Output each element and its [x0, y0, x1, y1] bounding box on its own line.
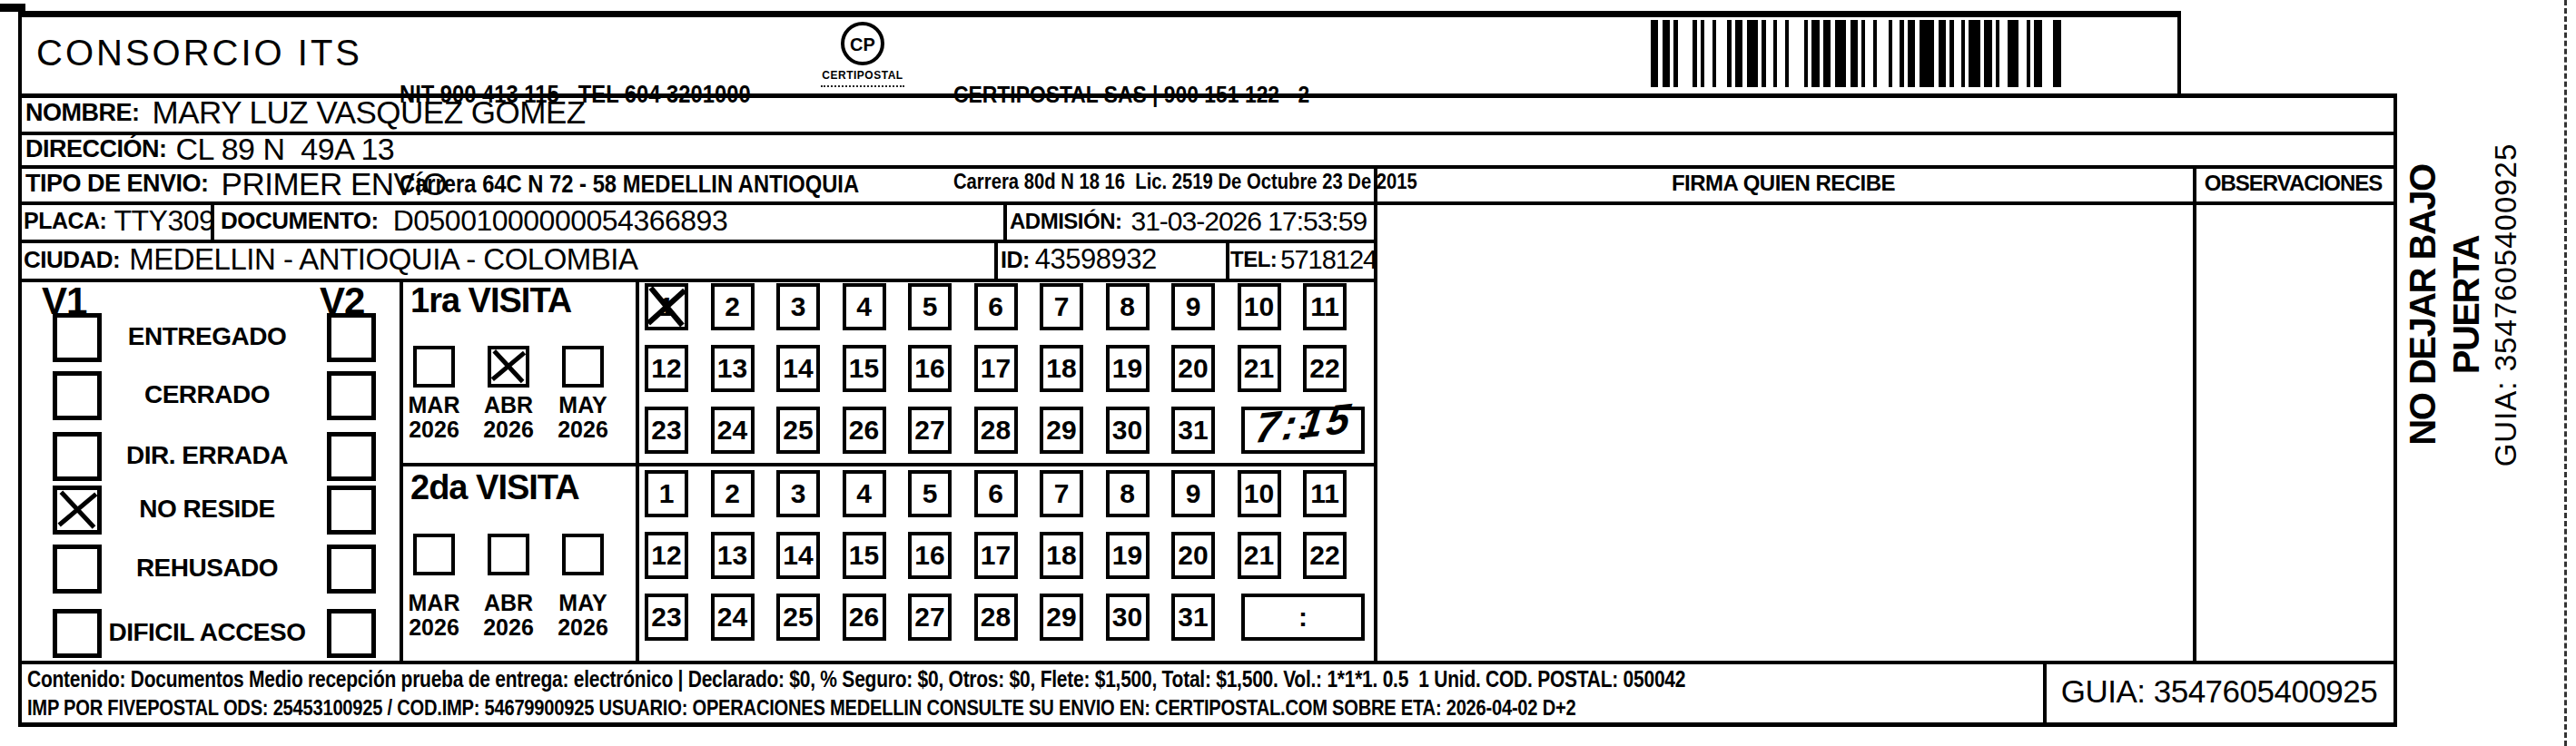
- day-cell-8-visit-2[interactable]: 8: [1106, 470, 1150, 517]
- provider-license-line: Carrera 80d N 18 16 Lic. 2519 De Octubre…: [953, 167, 1417, 196]
- first-visit-title: 1ra VISITA: [410, 281, 571, 320]
- barcode-bar: [2042, 20, 2054, 87]
- day-cell-26-visit-1[interactable]: 26: [843, 407, 886, 454]
- documento-value: D05001000000054366893: [393, 204, 728, 238]
- month-label-mar: MAR: [396, 392, 472, 418]
- tipo-envio-value: PRIMER ENVíO: [222, 166, 448, 202]
- day-cell-17-visit-2[interactable]: 17: [974, 532, 1018, 579]
- visita-days-divider: [636, 279, 639, 661]
- tipo-envio-label: TIPO DE ENVIO:: [25, 170, 209, 198]
- nombre-label: NOMBRE:: [25, 99, 140, 127]
- month-year-label: 2026: [396, 614, 472, 641]
- barcode-bar: [1939, 20, 1946, 87]
- day-number: 7: [1054, 291, 1070, 321]
- day-cell-19-visit-1[interactable]: 19: [1106, 345, 1150, 392]
- placa-label: PLACA:: [24, 208, 106, 234]
- day-number: 10: [1244, 478, 1274, 508]
- day-number: 27: [914, 602, 944, 632]
- day-cell-13-visit-1[interactable]: 13: [711, 345, 755, 392]
- day-cell-28-visit-2[interactable]: 28: [974, 594, 1018, 641]
- no-dejar-bajo-puerta-text: NO DEJAR BAJO PUERTA: [2401, 113, 2488, 497]
- barcode-bar: [1777, 20, 1784, 87]
- day-number: 12: [651, 353, 681, 383]
- day-cell-12-visit-1[interactable]: 12: [645, 345, 688, 392]
- month-year-label: 2026: [470, 614, 547, 641]
- row-line-below-direccion: [18, 165, 2397, 169]
- placa-documento-divider: [211, 201, 214, 243]
- day-number: 20: [1178, 353, 1208, 383]
- left-section-right-border: [1374, 165, 1377, 661]
- status-label-dificil-acceso: DIFICIL ACCESO: [93, 618, 321, 647]
- documento-label: DOCUMENTO:: [221, 207, 379, 235]
- field-documento: DOCUMENTO: D05001000000054366893: [221, 202, 727, 240]
- day-cell-1-visit-1[interactable]: 1: [645, 283, 688, 330]
- day-cell-20-visit-1[interactable]: 20: [1171, 345, 1215, 392]
- month-label-may: MAY: [545, 590, 621, 616]
- firma-observaciones-divider: [2193, 165, 2196, 661]
- day-cell-23-visit-2[interactable]: 23: [645, 594, 688, 641]
- day-cell-27-visit-2[interactable]: 27: [908, 594, 952, 641]
- field-ciudad: CIUDAD: MEDELLIN - ANTIOQUIA - COLOMBIA: [24, 240, 638, 279]
- logo-wordmark: CERTIPOSTAL: [808, 69, 917, 82]
- day-number: 25: [783, 602, 813, 632]
- day-cell-23-visit-1[interactable]: 23: [645, 407, 688, 454]
- barcode-bar: [1766, 20, 1773, 87]
- day-cell-24-visit-1[interactable]: 24: [711, 407, 755, 454]
- barcode-bar: [2008, 20, 2019, 87]
- day-number: 6: [988, 291, 1003, 321]
- logo-monogram: CP: [850, 34, 875, 54]
- barcode-bar: [1984, 20, 1991, 87]
- month-year-label: 2026: [545, 614, 621, 641]
- observaciones-area[interactable]: [2196, 203, 2390, 657]
- day-number: 10: [1244, 291, 1274, 321]
- id-value: 43598932: [1035, 243, 1157, 276]
- form-bottom-border: [18, 722, 2397, 727]
- footer-imp-line: IMP POR FIVEPOSTAL ODS: 25453100925 / CO…: [27, 695, 1575, 721]
- perforation-dashed-edge: [2564, 0, 2567, 746]
- day-cell-12-visit-2[interactable]: 12: [645, 532, 688, 579]
- checkbox-v2-cerrado[interactable]: [327, 371, 376, 420]
- barcode-bar: [1865, 20, 1872, 87]
- checkbox-month-may-visit-2[interactable]: [562, 534, 604, 575]
- day-number: 13: [717, 540, 747, 570]
- company-address-line: Carrera 64C N 72 - 58 MEDELLIN ANTIOQUIA: [400, 170, 859, 200]
- barcode-bar: [1811, 20, 1819, 87]
- row-line-below-ciudad: [18, 279, 1377, 282]
- id-label: ID:: [1001, 247, 1030, 273]
- direccion-value: CL 89 N 49A 13: [176, 132, 395, 167]
- day-number: 28: [981, 602, 1011, 632]
- month-label-mar: MAR: [396, 590, 472, 616]
- barcode-bar: [1651, 20, 1658, 87]
- second-visit-title: 2da VISITA: [410, 468, 579, 507]
- checkbox-v2-no-reside[interactable]: [327, 486, 376, 535]
- day-number: 26: [849, 415, 879, 445]
- day-cell-17-visit-1[interactable]: 17: [974, 345, 1018, 392]
- day-cell-18-visit-1[interactable]: 18: [1040, 345, 1083, 392]
- barcode-bar: [1892, 20, 1900, 87]
- day-number: 1: [659, 478, 675, 508]
- day-number: 24: [717, 415, 747, 445]
- day-number: 24: [717, 602, 747, 632]
- checkbox-month-abr-visit-1[interactable]: [488, 346, 529, 388]
- visit-divider-line: [400, 463, 1377, 466]
- day-cell-28-visit-1[interactable]: 28: [974, 407, 1018, 454]
- header-top-border: [18, 11, 2181, 17]
- day-cell-3-visit-2[interactable]: 3: [776, 470, 820, 517]
- barcode-bar: [1877, 20, 1889, 87]
- side-note-vertical: NO DEJAR BAJO PUERTA GUIA: 3547605400925: [2401, 113, 2524, 497]
- day-number: 13: [717, 353, 747, 383]
- field-direccion: DIRECCIÓN: CL 89 N 49A 13: [25, 133, 394, 165]
- month-label-abr: ABR: [470, 590, 547, 616]
- day-cell-18-visit-2[interactable]: 18: [1040, 532, 1083, 579]
- day-number: 22: [1309, 540, 1339, 570]
- id-tel-divider: [1226, 240, 1229, 282]
- status-label-rehusado: REHUSADO: [93, 554, 321, 583]
- form-left-border: [18, 11, 22, 727]
- day-cell-5-visit-2[interactable]: 5: [908, 470, 952, 517]
- day-number: 8: [1120, 478, 1135, 508]
- barcode-bar: [1704, 20, 1712, 87]
- day-cell-21-visit-1[interactable]: 21: [1238, 345, 1281, 392]
- day-cell-26-visit-2[interactable]: 26: [843, 594, 886, 641]
- barcode-bar: [1908, 20, 1915, 87]
- month-year-label: 2026: [545, 417, 621, 443]
- nombre-value: MARY LUZ VASQUEZ GOMEZ: [153, 94, 586, 131]
- footer-content-line: Contenido: Documentos Medio recepción pr…: [27, 666, 1685, 692]
- day-number: 2: [725, 478, 740, 508]
- day-number: 29: [1046, 415, 1076, 445]
- ciudad-value: MEDELLIN - ANTIOQUIA - COLOMBIA: [129, 242, 637, 277]
- observaciones-header: OBSERVACIONES: [2196, 169, 2390, 198]
- status-label-dir-errada: DIR. ERRADA: [93, 441, 321, 470]
- day-cell-25-visit-1[interactable]: 25: [776, 407, 820, 454]
- barcode-bar: [1663, 20, 1670, 87]
- logo-tagline: [821, 85, 904, 87]
- barcode-bar: [1969, 20, 1980, 87]
- day-number: 20: [1178, 540, 1208, 570]
- day-number: 21: [1244, 353, 1274, 383]
- day-cell-10-visit-1[interactable]: 10: [1238, 283, 1281, 330]
- day-number: 3: [791, 291, 806, 321]
- handwritten-time: 7:15: [1244, 397, 1366, 449]
- day-cell-6-visit-2[interactable]: 6: [974, 470, 1018, 517]
- day-number: 17: [981, 540, 1011, 570]
- admision-value: 31-03-2026 17:53:59: [1131, 206, 1367, 237]
- day-cell-7-visit-2[interactable]: 7: [1040, 470, 1083, 517]
- day-number: 29: [1046, 602, 1076, 632]
- row-line-below-nombre: [18, 132, 2397, 135]
- day-cell-11-visit-2[interactable]: 11: [1303, 470, 1347, 517]
- day-cell-27-visit-1[interactable]: 27: [908, 407, 952, 454]
- form-right-border: [2393, 93, 2397, 727]
- day-number: 12: [651, 540, 681, 570]
- day-cell-22-visit-1[interactable]: 22: [1303, 345, 1347, 392]
- day-number: 23: [651, 415, 681, 445]
- day-cell-4-visit-1[interactable]: 4: [843, 283, 886, 330]
- month-label-may: MAY: [545, 392, 621, 418]
- day-cell-31-visit-1[interactable]: 31: [1171, 407, 1215, 454]
- checkbox-month-abr-visit-2[interactable]: [488, 534, 529, 575]
- day-cell-8-visit-1[interactable]: 8: [1106, 283, 1150, 330]
- day-number: 16: [914, 540, 944, 570]
- day-number: 9: [1186, 291, 1201, 321]
- day-cell-15-visit-1[interactable]: 15: [843, 345, 886, 392]
- tel-label: TEL:: [1230, 247, 1277, 272]
- field-admision: ADMISIÓN: 31-03-2026 17:53:59: [1010, 202, 1367, 240]
- day-number: 31: [1178, 602, 1208, 632]
- barcode-bar: [2018, 20, 2026, 87]
- barcode-bar: [1716, 20, 1728, 87]
- day-cell-20-visit-2[interactable]: 20: [1171, 532, 1215, 579]
- barcode-bar: [2053, 20, 2060, 87]
- ciudad-id-divider: [994, 240, 998, 282]
- day-number: 14: [783, 540, 813, 570]
- day-cell-29-visit-2[interactable]: 29: [1040, 594, 1083, 641]
- checkbox-v2-dir-errada[interactable]: [327, 432, 376, 481]
- day-number: 28: [981, 415, 1011, 445]
- checkbox-month-may-visit-1[interactable]: [562, 346, 604, 388]
- day-number: 3: [791, 478, 806, 508]
- day-number: 31: [1178, 415, 1208, 445]
- time-box-visit-1[interactable]: :7:15: [1241, 407, 1365, 454]
- day-number: 16: [914, 353, 944, 383]
- day-number: 8: [1120, 291, 1135, 321]
- day-cell-2-visit-2[interactable]: 2: [711, 470, 755, 517]
- day-cell-11-visit-1[interactable]: 11: [1303, 283, 1347, 330]
- day-cell-30-visit-1[interactable]: 30: [1106, 407, 1150, 454]
- day-cell-4-visit-2[interactable]: 4: [843, 470, 886, 517]
- day-number: 27: [914, 415, 944, 445]
- header-right-border: [2177, 11, 2181, 93]
- day-cell-16-visit-1[interactable]: 16: [908, 345, 952, 392]
- day-cell-6-visit-1[interactable]: 6: [974, 283, 1018, 330]
- day-number: 9: [1186, 478, 1201, 508]
- day-number: 4: [856, 291, 872, 321]
- guia-number-box: GUIA: 3547605400925: [2047, 663, 2392, 721]
- day-cell-16-visit-2[interactable]: 16: [908, 532, 952, 579]
- barcode-bar: [1851, 20, 1858, 87]
- barcode-bar: [1735, 20, 1742, 87]
- header-bottom-border: [18, 93, 2397, 98]
- checkbox-v2-entregado[interactable]: [327, 313, 376, 362]
- day-number: 18: [1046, 353, 1076, 383]
- barcode-bar: [1920, 20, 1935, 87]
- day-number: 5: [923, 478, 938, 508]
- day-number: 30: [1112, 415, 1142, 445]
- day-cell-13-visit-2[interactable]: 13: [711, 532, 755, 579]
- day-number: 14: [783, 353, 813, 383]
- field-tel: TEL: 5718124: [1230, 240, 1377, 279]
- row-line-below-placa: [18, 240, 1377, 243]
- footer-top-border: [18, 661, 2397, 664]
- day-cell-1-visit-2[interactable]: 1: [645, 470, 688, 517]
- day-number: 15: [849, 353, 879, 383]
- day-number: 6: [988, 478, 1003, 508]
- day-number: 11: [1310, 291, 1339, 321]
- month-year-label: 2026: [470, 417, 547, 443]
- barcode-bar: [2034, 20, 2041, 87]
- barcode-bar: [1835, 20, 1847, 87]
- firma-area[interactable]: [1377, 203, 2189, 657]
- day-cell-5-visit-1[interactable]: 5: [908, 283, 952, 330]
- time-box-visit-2[interactable]: :: [1241, 594, 1365, 641]
- day-cell-7-visit-1[interactable]: 7: [1040, 283, 1083, 330]
- row-line-below-tipo: [18, 201, 2397, 205]
- side-guia-text: GUIA: 3547605400925: [2488, 113, 2524, 497]
- placa-value: TTY309: [114, 204, 214, 238]
- delivery-form-scan: CONSORCIO ITS NIT 900 413 115 - TEL 604 …: [0, 0, 2576, 746]
- day-number: 5: [923, 291, 938, 321]
- day-number: 4: [856, 478, 872, 508]
- day-number: 7: [1054, 478, 1070, 508]
- direccion-label: DIRECCIÓN:: [25, 135, 167, 163]
- barcode-bar: [1747, 20, 1759, 87]
- day-number: 30: [1112, 602, 1142, 632]
- month-year-label: 2026: [396, 417, 472, 443]
- day-number: 25: [783, 415, 813, 445]
- day-number: 21: [1244, 540, 1274, 570]
- field-nombre: NOMBRE: MARY LUZ VASQUEZ GOMEZ: [25, 94, 586, 131]
- checkbox-v2-dificil-acceso[interactable]: [327, 609, 376, 658]
- day-number: 26: [849, 602, 879, 632]
- barcode-bar: [1678, 20, 1693, 87]
- day-number: 23: [651, 602, 681, 632]
- day-cell-19-visit-2[interactable]: 19: [1106, 532, 1150, 579]
- day-cell-30-visit-2[interactable]: 30: [1106, 594, 1150, 641]
- field-tipo-envio: TIPO DE ENVIO: PRIMER ENVíO: [25, 166, 447, 201]
- checkbox-month-mar-visit-1[interactable]: [413, 346, 455, 388]
- field-placa: PLACA: TTY309: [24, 202, 214, 240]
- company-name: CONSORCIO ITS: [36, 33, 362, 74]
- day-cell-15-visit-2[interactable]: 15: [843, 532, 886, 579]
- tel-value: 5718124: [1280, 245, 1377, 275]
- status-label-entregado: ENTREGADO: [93, 322, 321, 351]
- field-id: ID: 43598932: [1001, 240, 1157, 279]
- day-cell-22-visit-2[interactable]: 22: [1303, 532, 1347, 579]
- day-number: 11: [1310, 478, 1339, 508]
- day-cell-3-visit-1[interactable]: 3: [776, 283, 820, 330]
- day-number: 17: [981, 353, 1011, 383]
- checkbox-v2-rehusado[interactable]: [327, 545, 376, 594]
- checkbox-month-mar-visit-2[interactable]: [413, 534, 455, 575]
- day-cell-31-visit-2[interactable]: 31: [1171, 594, 1215, 641]
- month-label-abr: ABR: [470, 392, 547, 418]
- barcode-bar: [1954, 20, 1961, 87]
- documento-admision-divider: [1003, 201, 1007, 243]
- day-number: 15: [849, 540, 879, 570]
- barcode-bar: [1823, 20, 1831, 87]
- barcode-bar: [1789, 20, 1804, 87]
- guia-box-left-border: [2043, 661, 2047, 722]
- day-cell-2-visit-1[interactable]: 2: [711, 283, 755, 330]
- barcode-bar: [1999, 20, 2007, 87]
- day-cell-21-visit-2[interactable]: 21: [1238, 532, 1281, 579]
- day-cell-10-visit-2[interactable]: 10: [1238, 470, 1281, 517]
- day-cell-24-visit-2[interactable]: 24: [711, 594, 755, 641]
- firma-quien-recibe-header: FIRMA QUIEN RECIBE: [1377, 169, 2189, 198]
- certipostal-logo-icon: CP: [841, 22, 884, 65]
- day-number: 2: [725, 291, 740, 321]
- day-cell-25-visit-2[interactable]: 25: [776, 594, 820, 641]
- time-separator: :: [1298, 602, 1308, 632]
- day-number: 18: [1046, 540, 1076, 570]
- day-cell-29-visit-1[interactable]: 29: [1040, 407, 1083, 454]
- status-label-cerrado: CERRADO: [93, 380, 321, 409]
- day-cell-14-visit-1[interactable]: 14: [776, 345, 820, 392]
- status-label-no-reside: NO RESIDE: [93, 495, 321, 524]
- admision-label: ADMISIÓN:: [1010, 209, 1122, 234]
- day-cell-14-visit-2[interactable]: 14: [776, 532, 820, 579]
- day-number: 22: [1309, 353, 1339, 383]
- barcode: [1651, 20, 2061, 87]
- day-cell-9-visit-1[interactable]: 9: [1171, 283, 1215, 330]
- day-number: 19: [1112, 353, 1142, 383]
- day-cell-9-visit-2[interactable]: 9: [1171, 470, 1215, 517]
- ciudad-label: CIUDAD:: [24, 246, 120, 274]
- day-number: 19: [1112, 540, 1142, 570]
